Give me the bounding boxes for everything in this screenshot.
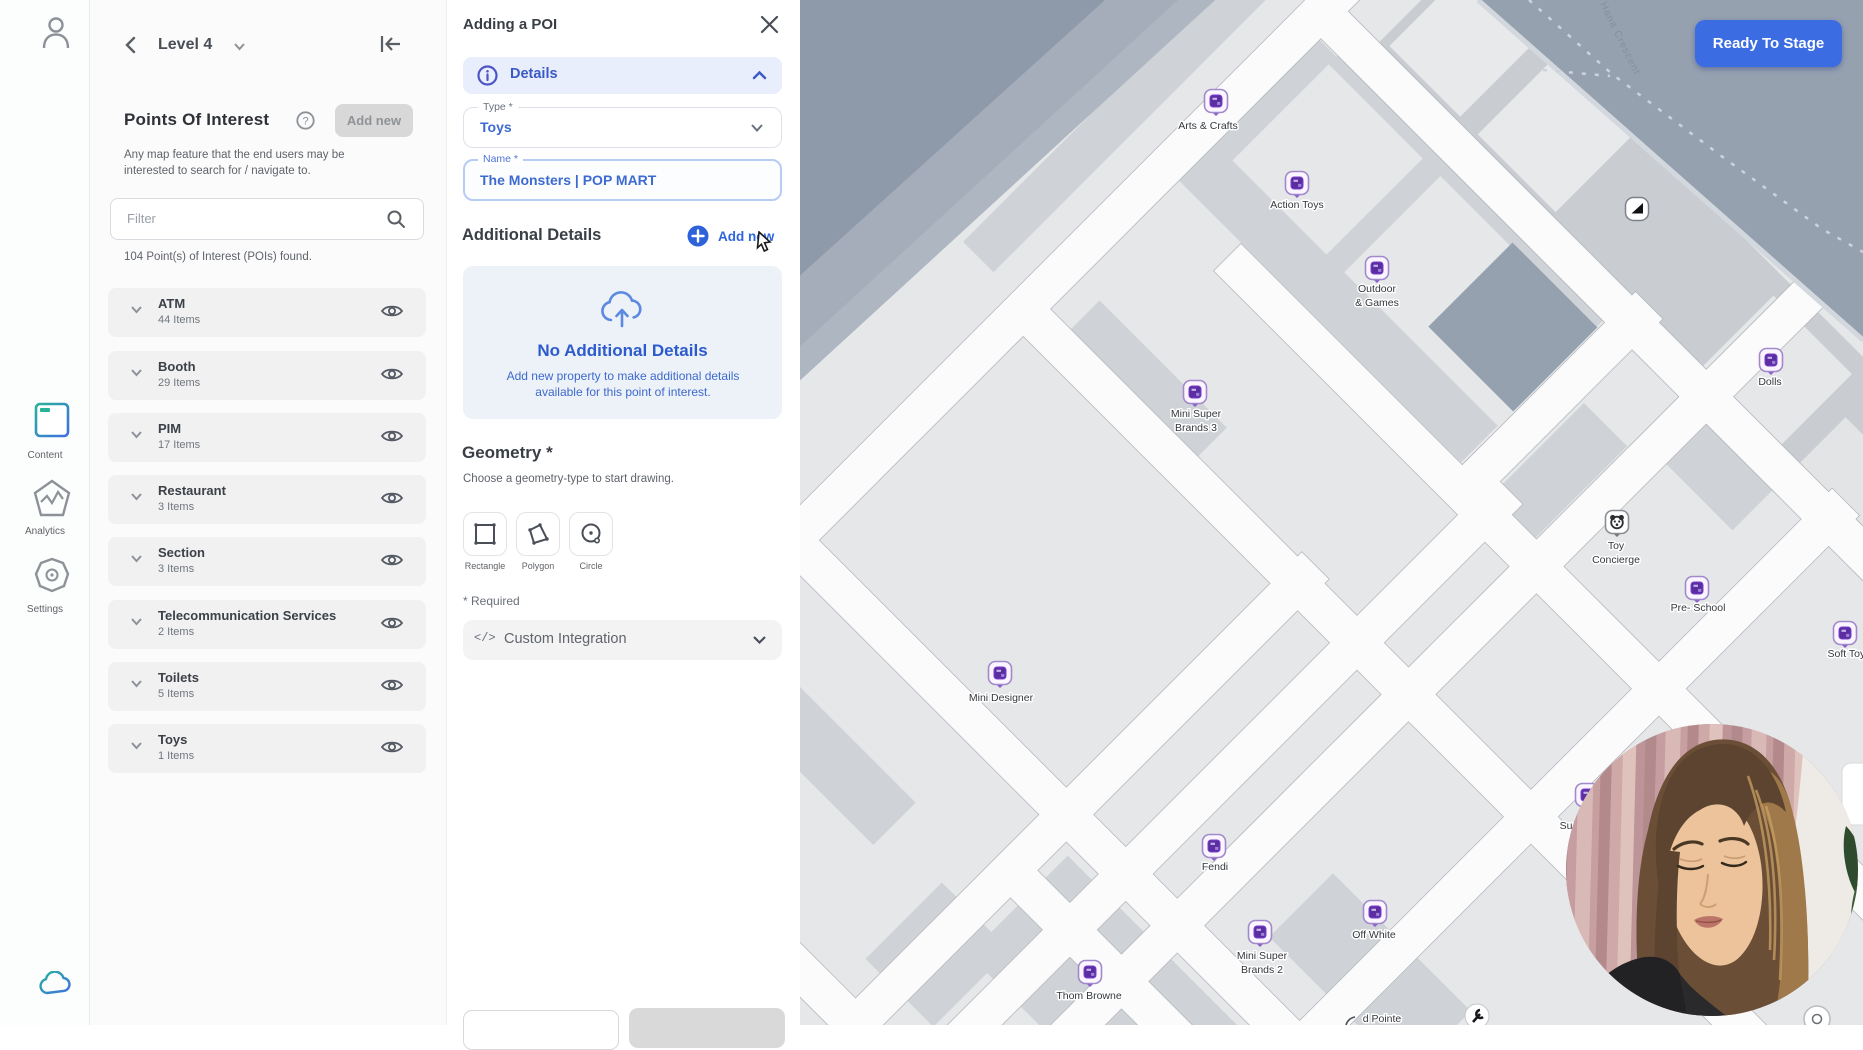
svg-text:Mini Designer: Mini Designer: [969, 692, 1034, 704]
svg-text:Dolls: Dolls: [1758, 376, 1781, 388]
svg-text:Su: Su: [1560, 820, 1573, 832]
svg-text:Soft Toys: Soft Toys: [1828, 648, 1863, 660]
svg-text:Action Toys: Action Toys: [1270, 199, 1324, 211]
svg-text:Off White: Off White: [1352, 929, 1396, 941]
svg-text:?: ?: [302, 116, 308, 128]
svg-text:Arts & Crafts: Arts & Crafts: [1178, 120, 1238, 132]
svg-text:d Pointe: d Pointe: [1363, 1013, 1402, 1025]
svg-text:Pre- School: Pre- School: [1671, 602, 1726, 614]
svg-text:Fendi: Fendi: [1202, 861, 1228, 873]
svg-text:Thom Browne: Thom Browne: [1056, 990, 1122, 1002]
